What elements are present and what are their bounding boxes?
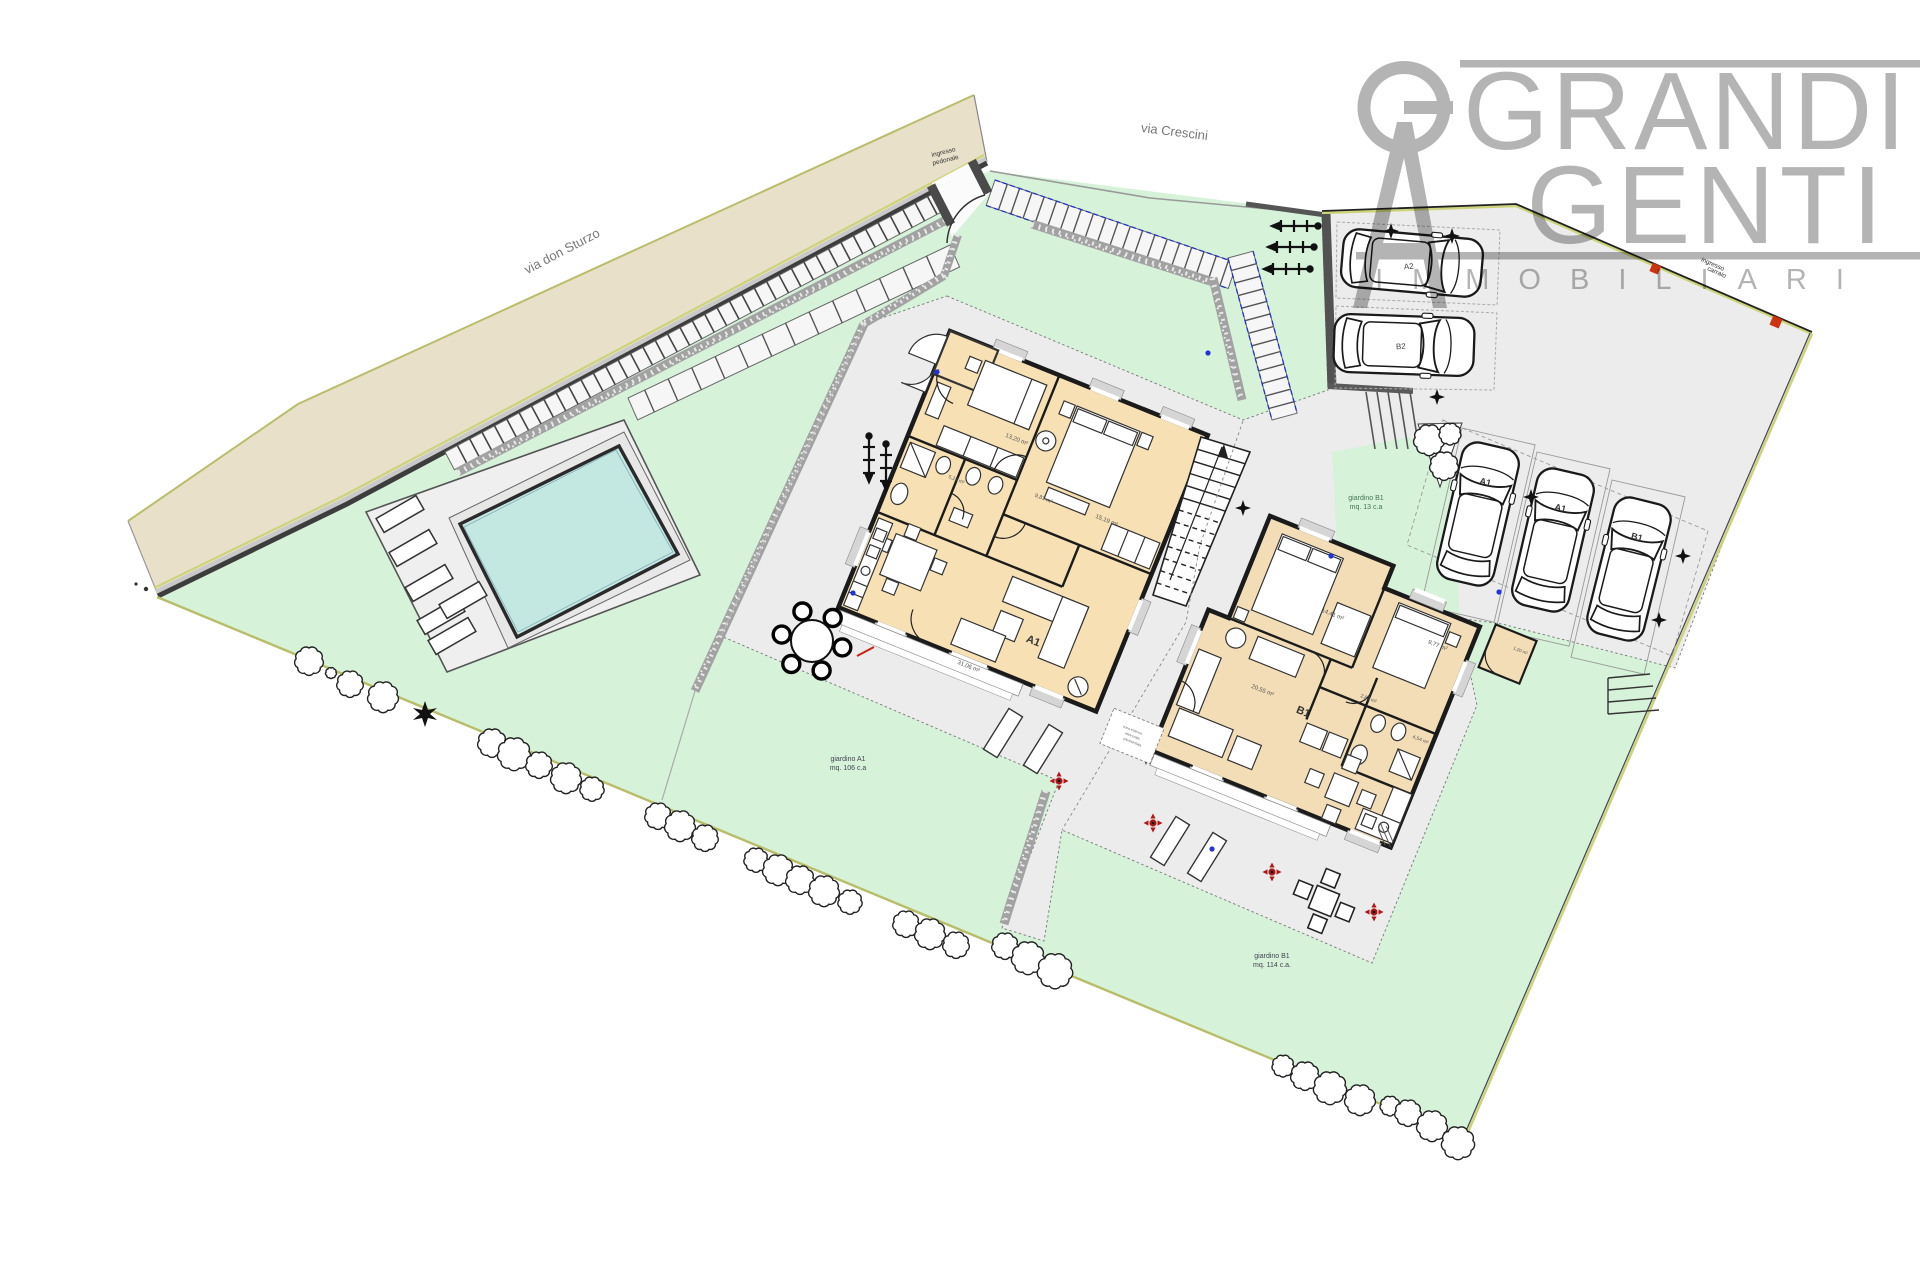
- svg-text:mq. 114 c.a.: mq. 114 c.a.: [1253, 962, 1291, 969]
- svg-text:giardino A1: giardino A1: [830, 756, 865, 763]
- svg-text:mq. 106 c.a: mq. 106 c.a: [830, 765, 867, 772]
- svg-text:giardino B1: giardino B1: [1254, 953, 1290, 960]
- svg-text:IMMOBILIARI: IMMOBILIARI: [1375, 264, 1873, 296]
- svg-text:B2: B2: [1396, 342, 1407, 352]
- svg-text:mq. 13 c.a: mq. 13 c.a: [1350, 504, 1383, 511]
- svg-text:giardino B1: giardino B1: [1348, 495, 1384, 502]
- svg-text:GENTI: GENTI: [1526, 144, 1887, 267]
